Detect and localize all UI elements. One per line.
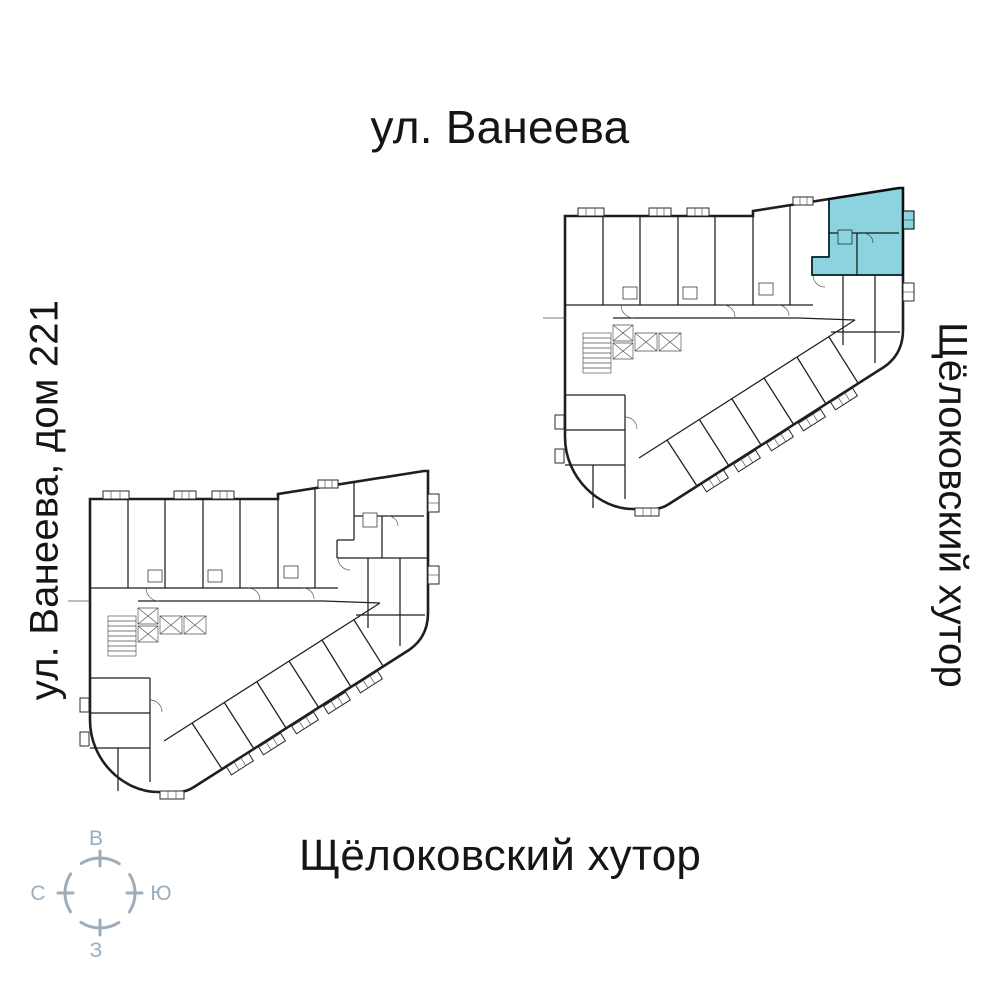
compass-east-label: В <box>89 827 103 850</box>
floor-plan-upper <box>543 188 914 516</box>
compass-ring <box>65 858 135 928</box>
compass-west-label: З <box>90 939 103 962</box>
highlighted-apartment-balcony <box>903 211 914 229</box>
floor-plans-canvas: В С Ю З <box>0 0 1000 1000</box>
site-plan-page: ул. Ванеева ул. Ванеева, дом 221 Щёлоков… <box>0 0 1000 1000</box>
compass: В С Ю З <box>30 827 171 962</box>
compass-south-label: Ю <box>150 882 171 905</box>
compass-north-label: С <box>30 882 45 905</box>
floor-plan-lower <box>68 471 439 799</box>
